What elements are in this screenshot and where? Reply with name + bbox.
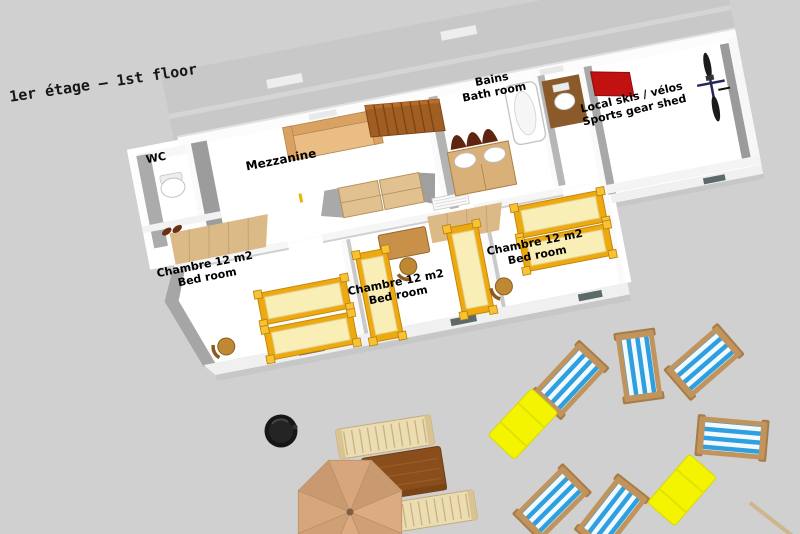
deck-chair <box>694 414 769 462</box>
sun-lounger-yellow <box>647 454 716 526</box>
floor-plan-scene: 1er étage – 1st floor WC Mezzanine Bains… <box>0 0 800 534</box>
staircase <box>365 99 445 137</box>
deck-chair <box>512 463 593 534</box>
deck-chair <box>613 327 665 404</box>
barbecue-grill <box>265 415 298 448</box>
deck-chair <box>573 473 650 534</box>
building <box>114 0 782 389</box>
wooden-pole <box>749 501 796 534</box>
deck-chair <box>663 323 745 402</box>
